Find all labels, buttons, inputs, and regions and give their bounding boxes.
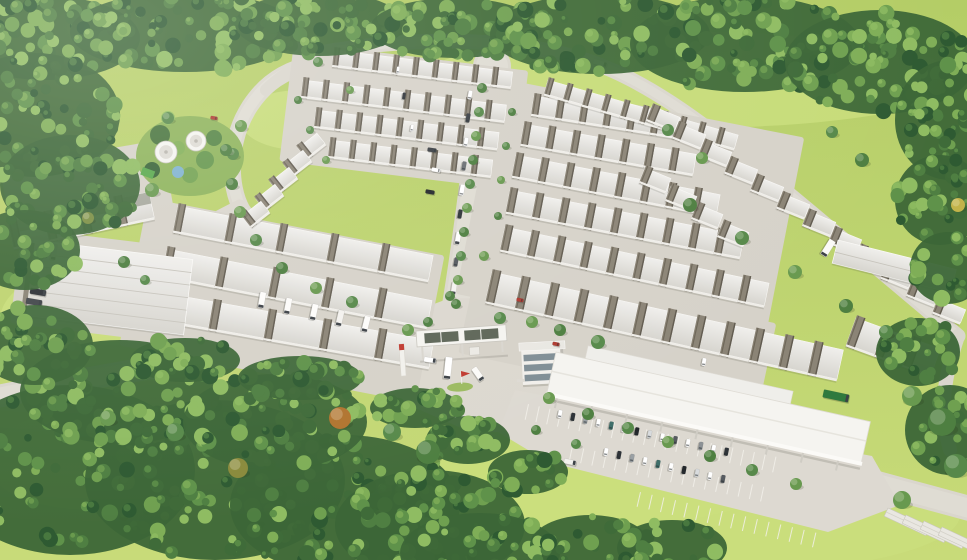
- forest-tree-highlight: [54, 215, 59, 220]
- forest-tree: [130, 423, 143, 436]
- pavilion-hub: [164, 150, 168, 154]
- forest-tree-highlight: [57, 268, 62, 273]
- forest-tree-highlight: [11, 58, 15, 62]
- forest-tree: [746, 66, 757, 77]
- forest-tree-highlight: [169, 368, 173, 372]
- forest-tree: [269, 510, 277, 518]
- forest-tree-highlight: [510, 507, 516, 513]
- forest-tree: [231, 424, 248, 441]
- forest-tree: [80, 155, 92, 167]
- tree-highlight: [384, 424, 394, 434]
- forest-tree: [822, 97, 833, 108]
- forest-tree-highlight: [529, 48, 535, 54]
- forest-tree-highlight: [161, 406, 165, 410]
- tree-highlight: [583, 409, 590, 416]
- forest-tree-highlight: [910, 202, 917, 209]
- forest-tree-highlight: [15, 488, 21, 494]
- forest-tree-highlight: [450, 493, 456, 499]
- forest-tree-highlight: [84, 453, 91, 460]
- forest-tree-highlight: [917, 199, 924, 206]
- forest-tree-highlight: [931, 126, 937, 132]
- forest-tree-highlight: [480, 421, 486, 427]
- forest-tree-highlight: [390, 536, 398, 544]
- forest-tree: [123, 525, 130, 532]
- forest-tree-highlight: [281, 21, 289, 29]
- forest-tree-highlight: [74, 75, 78, 79]
- forest-tree: [479, 530, 490, 541]
- forest-tree-highlight: [660, 5, 668, 13]
- forest-tree: [30, 89, 38, 97]
- forest-tree-highlight: [959, 280, 966, 287]
- forest-tree: [148, 40, 155, 47]
- forest-tree: [17, 314, 33, 330]
- tree-highlight: [503, 142, 507, 146]
- tree-highlight: [236, 121, 243, 128]
- forest-tree: [30, 483, 44, 497]
- forest-tree: [598, 17, 606, 25]
- forest-tree: [448, 15, 457, 24]
- forest-tree-highlight: [905, 124, 912, 131]
- forest-tree: [520, 33, 537, 50]
- forest-tree: [926, 37, 937, 48]
- tree-highlight: [331, 408, 343, 420]
- forest-tree-highlight: [916, 212, 920, 216]
- forest-tree: [300, 3, 312, 15]
- forest-tree: [902, 50, 918, 66]
- forest-tree: [685, 20, 701, 36]
- forest-tree-highlight: [29, 498, 35, 504]
- forest-tree-highlight: [347, 46, 352, 51]
- forest-tree-highlight: [325, 541, 330, 546]
- tree-highlight: [894, 492, 904, 502]
- tree-highlight: [498, 176, 502, 180]
- forest-tree-highlight: [86, 346, 92, 352]
- forest-tree: [555, 545, 564, 554]
- forest-tree: [772, 60, 787, 75]
- forest-tree-highlight: [621, 51, 626, 56]
- forest-tree-highlight: [70, 533, 75, 538]
- forest-tree-highlight: [712, 14, 720, 22]
- forest-tree-highlight: [513, 45, 521, 53]
- tree-highlight: [295, 96, 299, 100]
- forest-tree-highlight: [124, 13, 128, 17]
- forest-tree-highlight: [22, 336, 27, 341]
- forest-tree-highlight: [485, 23, 490, 28]
- forest-tree: [24, 434, 32, 442]
- forest-tree: [50, 463, 60, 473]
- forest-tree-highlight: [423, 419, 428, 424]
- forest-tree: [935, 344, 945, 354]
- forest-tree-highlight: [267, 447, 271, 451]
- tree: [944, 454, 967, 478]
- forest-tree: [21, 181, 34, 194]
- forest-tree-highlight: [121, 367, 129, 375]
- forest-tree-highlight: [253, 525, 257, 529]
- tree-highlight: [747, 465, 754, 472]
- forest-tree: [633, 25, 650, 42]
- forest-tree-highlight: [222, 477, 228, 483]
- forest-tree-highlight: [13, 143, 19, 149]
- forest-tree-highlight: [16, 53, 23, 60]
- forest-tree-highlight: [402, 402, 410, 410]
- forest-tree-highlight: [43, 110, 48, 115]
- forest-tree-highlight: [422, 394, 430, 402]
- forest-tree-highlight: [94, 13, 101, 20]
- forest-tree: [247, 508, 261, 522]
- forest-tree-highlight: [942, 32, 950, 40]
- forest-tree: [147, 29, 155, 37]
- forest-tree-highlight: [439, 414, 443, 418]
- forest-tree-highlight: [157, 496, 161, 500]
- forest-tree: [402, 25, 409, 32]
- forest-tree-highlight: [12, 351, 18, 357]
- forest-tree: [136, 364, 152, 380]
- tree-highlight: [544, 393, 551, 400]
- forest-tree: [86, 183, 98, 195]
- tree-highlight: [904, 387, 915, 398]
- forest-tree-highlight: [711, 57, 719, 65]
- forest-tree-highlight: [309, 365, 317, 373]
- forest-tree: [426, 520, 440, 534]
- forest-tree: [163, 347, 176, 360]
- forest-tree-highlight: [84, 130, 90, 136]
- forest-tree: [27, 367, 41, 381]
- forest-tree-highlight: [388, 396, 393, 401]
- tree-highlight: [736, 232, 744, 240]
- forest-tree: [46, 315, 56, 325]
- forest-tree: [142, 426, 153, 437]
- pavilion-hub: [194, 139, 198, 143]
- forest-tree-highlight: [69, 58, 77, 66]
- tree-highlight: [311, 283, 318, 290]
- office-entrance-canopy: [517, 379, 525, 382]
- forest-tree: [869, 53, 876, 60]
- forest-tree-highlight: [82, 502, 87, 507]
- tree-highlight: [509, 108, 513, 112]
- forest-tree-highlight: [316, 549, 322, 555]
- forest-tree-highlight: [921, 229, 928, 236]
- forest-tree-highlight: [280, 359, 286, 365]
- forest-tree: [461, 49, 473, 61]
- forest-tree: [81, 9, 94, 22]
- forest-tree-highlight: [349, 545, 356, 552]
- forest-tree: [951, 173, 959, 181]
- forest-tree: [875, 103, 891, 119]
- forest-tree: [555, 473, 567, 485]
- forest-tree: [176, 400, 184, 408]
- forest-tree-highlight: [61, 157, 69, 165]
- forest-tree: [1, 71, 14, 84]
- forest-tree-highlight: [808, 34, 813, 39]
- tree-highlight: [952, 199, 960, 207]
- forest-tree: [79, 118, 87, 126]
- forest-tree-highlight: [294, 372, 302, 380]
- forest-tree-highlight: [422, 35, 428, 41]
- tree-highlight: [460, 228, 466, 234]
- forest-tree: [105, 11, 117, 23]
- forest-tree-highlight: [915, 165, 921, 171]
- forest-tree: [246, 44, 261, 59]
- forest-tree: [593, 65, 605, 77]
- forest-tree: [399, 525, 410, 536]
- tree-highlight: [856, 154, 864, 162]
- forest-tree-highlight: [107, 123, 113, 129]
- tree-highlight: [314, 58, 320, 64]
- forest-tree-highlight: [436, 486, 442, 492]
- tree-highlight: [946, 455, 959, 468]
- forest-tree-highlight: [330, 361, 334, 365]
- forest-tree: [69, 380, 78, 389]
- forest-tree: [185, 34, 193, 42]
- forest-tree-highlight: [930, 457, 934, 461]
- forest-tree-highlight: [650, 519, 656, 525]
- forest-tree: [133, 404, 147, 418]
- forest-tree-highlight: [2, 102, 8, 108]
- tree-highlight: [146, 184, 154, 192]
- forest-tree: [184, 506, 191, 513]
- forest-tree-highlight: [867, 21, 871, 25]
- forest-tree-highlight: [898, 101, 903, 106]
- forest-tree: [832, 42, 848, 58]
- forest-tree: [949, 154, 962, 167]
- forest-tree: [458, 474, 470, 486]
- forest-tree-highlight: [264, 361, 268, 365]
- forest-tree-highlight: [345, 4, 353, 12]
- forest-tree: [682, 48, 697, 63]
- tree-highlight: [555, 325, 562, 332]
- forest-tree: [119, 462, 135, 478]
- forest-tree-highlight: [21, 250, 26, 255]
- forest-tree-highlight: [123, 504, 130, 511]
- forest-tree: [831, 13, 839, 21]
- forest-tree-highlight: [314, 529, 320, 535]
- forest-tree: [149, 538, 162, 551]
- forest-tree: [504, 477, 520, 493]
- forest-tree-highlight: [500, 515, 506, 521]
- forest-tree: [296, 455, 311, 470]
- tree-highlight: [475, 108, 481, 114]
- forest-tree: [945, 79, 954, 88]
- forest-tree: [41, 84, 51, 94]
- forest-tree: [339, 7, 346, 14]
- forest-tree: [45, 31, 54, 40]
- tree-highlight: [454, 276, 460, 282]
- forest-tree-highlight: [186, 366, 194, 374]
- forest-tree: [926, 367, 936, 377]
- forest-tree: [115, 428, 132, 445]
- forest-tree: [787, 61, 803, 77]
- forest-tree-highlight: [274, 40, 281, 47]
- forest-tree: [117, 201, 132, 216]
- forest-tree-highlight: [52, 421, 56, 425]
- forest-tree-highlight: [60, 76, 65, 81]
- forest-tree-highlight: [55, 206, 62, 213]
- forest-tree: [5, 17, 20, 32]
- forest-tree: [900, 337, 915, 352]
- forest-tree: [935, 386, 945, 396]
- forest-tree: [117, 484, 124, 491]
- forest-tree: [150, 333, 167, 350]
- forest-tree-highlight: [235, 397, 243, 405]
- forest-tree-highlight: [760, 66, 767, 73]
- forest-tree: [418, 534, 431, 547]
- forest-tree-highlight: [7, 209, 11, 213]
- forest-tree: [48, 337, 64, 353]
- forest-tree: [301, 404, 315, 418]
- garden-shrub: [182, 167, 198, 183]
- forest-tree-highlight: [511, 543, 515, 547]
- forest-tree-highlight: [561, 556, 565, 560]
- tree-highlight: [227, 179, 234, 186]
- forest-tree-highlight: [433, 498, 440, 505]
- forest-tree-highlight: [186, 17, 190, 21]
- forest-tree-highlight: [28, 79, 32, 83]
- tree-highlight: [527, 317, 534, 324]
- forest-tree-highlight: [454, 447, 459, 452]
- forest-tree: [929, 147, 936, 154]
- forest-tree-highlight: [607, 16, 615, 24]
- forest-tree-highlight: [353, 457, 357, 461]
- tree-highlight: [930, 409, 945, 424]
- tree-highlight: [623, 423, 630, 430]
- forest-tree-highlight: [144, 465, 151, 472]
- forest-tree-highlight: [56, 157, 61, 162]
- forest-tree-highlight: [743, 29, 748, 34]
- forest-tree-highlight: [811, 5, 816, 10]
- forest-tree-highlight: [43, 532, 51, 540]
- forest-tree: [318, 385, 328, 395]
- forest-tree: [609, 35, 619, 45]
- forest-tree-highlight: [233, 64, 237, 68]
- tree-highlight: [789, 266, 797, 274]
- forest-tree-highlight: [880, 6, 888, 14]
- forest-tree-highlight: [150, 354, 157, 361]
- forest-tree: [180, 359, 188, 367]
- forest-tree-highlight: [64, 429, 72, 437]
- forest-tree-highlight: [365, 459, 369, 463]
- garden-shrub: [196, 151, 214, 169]
- tree-highlight: [446, 292, 452, 298]
- forest-tree: [112, 112, 121, 121]
- forest-tree: [161, 389, 174, 402]
- forest-tree: [866, 95, 874, 103]
- forest-tree: [326, 479, 338, 491]
- forest-tree: [10, 300, 25, 315]
- forest-tree: [950, 190, 958, 198]
- tree-highlight: [101, 411, 110, 420]
- forest-tree: [695, 71, 704, 80]
- forest-tree-highlight: [259, 405, 263, 409]
- tree-highlight: [840, 300, 848, 308]
- forest-tree: [313, 22, 327, 36]
- forest-tree-highlight: [853, 30, 860, 37]
- forest-tree-highlight: [945, 215, 950, 220]
- forest-tree: [241, 450, 249, 458]
- forest-tree: [52, 221, 61, 230]
- forest-tree-highlight: [940, 165, 945, 170]
- forest-tree-highlight: [955, 288, 961, 294]
- forest-tree: [460, 416, 476, 432]
- forest-tree-highlight: [702, 527, 709, 534]
- forest-tree-highlight: [434, 470, 440, 476]
- tree-highlight: [119, 257, 126, 264]
- forest-tree: [560, 58, 573, 71]
- forest-tree: [338, 430, 351, 443]
- vehicle-body: [396, 66, 400, 73]
- forest-tree: [214, 60, 231, 77]
- forest-tree-highlight: [397, 480, 401, 484]
- forest-tree-highlight: [122, 407, 130, 415]
- forest-tree: [412, 9, 424, 21]
- forest-tree-highlight: [523, 542, 530, 549]
- forest-tree-highlight: [84, 194, 92, 202]
- tree-highlight: [495, 212, 499, 216]
- forest-tree: [135, 6, 146, 17]
- forest-tree: [769, 36, 786, 53]
- forest-tree-highlight: [881, 341, 887, 347]
- forest-tree-highlight: [891, 85, 898, 92]
- forest-tree: [933, 109, 943, 119]
- forest-tree-highlight: [217, 341, 224, 348]
- forest-tree: [918, 124, 930, 136]
- tree-highlight: [307, 126, 311, 130]
- forest-tree: [375, 512, 391, 528]
- tree-highlight: [251, 235, 258, 242]
- forest-tree: [941, 351, 955, 365]
- forest-tree: [198, 458, 209, 469]
- forest-tree: [95, 87, 109, 101]
- forest-tree-highlight: [488, 539, 495, 546]
- forest-tree: [202, 498, 210, 506]
- forest-tree: [713, 34, 725, 46]
- forest-tree-highlight: [499, 531, 504, 536]
- forest-tree-highlight: [392, 6, 400, 14]
- forest-tree: [21, 23, 36, 38]
- forest-tree-highlight: [465, 494, 473, 502]
- forest-tree: [29, 339, 41, 351]
- forest-tree: [890, 188, 904, 202]
- forest-tree: [174, 58, 183, 67]
- forest-tree-highlight: [543, 540, 549, 546]
- forest-tree: [12, 468, 21, 477]
- forest-tree-highlight: [947, 282, 952, 287]
- forest-tree-highlight: [203, 433, 209, 439]
- tree-highlight: [663, 437, 670, 444]
- forest-tree: [18, 452, 32, 466]
- forest-tree: [62, 44, 75, 57]
- forest-tree-highlight: [433, 424, 439, 430]
- forest-tree-highlight: [44, 378, 50, 384]
- forest-tree-highlight: [67, 11, 75, 19]
- forest-tree: [248, 22, 256, 30]
- forest-tree-highlight: [44, 242, 50, 248]
- forest-tree: [564, 27, 573, 36]
- forest-tree: [173, 5, 182, 14]
- forest-tree-highlight: [412, 467, 420, 475]
- forest-tree-highlight: [607, 554, 611, 558]
- tree-highlight: [705, 451, 712, 458]
- forest-tree: [739, 35, 754, 50]
- tree-highlight: [221, 145, 228, 152]
- forest-tree: [31, 457, 44, 470]
- forest-tree: [198, 509, 213, 524]
- forest-tree-highlight: [183, 480, 191, 488]
- forest-tree: [263, 51, 275, 63]
- forest-tree-highlight: [611, 31, 615, 35]
- tree-highlight: [478, 84, 484, 90]
- forest-tree: [932, 274, 944, 286]
- forest-tree-highlight: [353, 473, 359, 479]
